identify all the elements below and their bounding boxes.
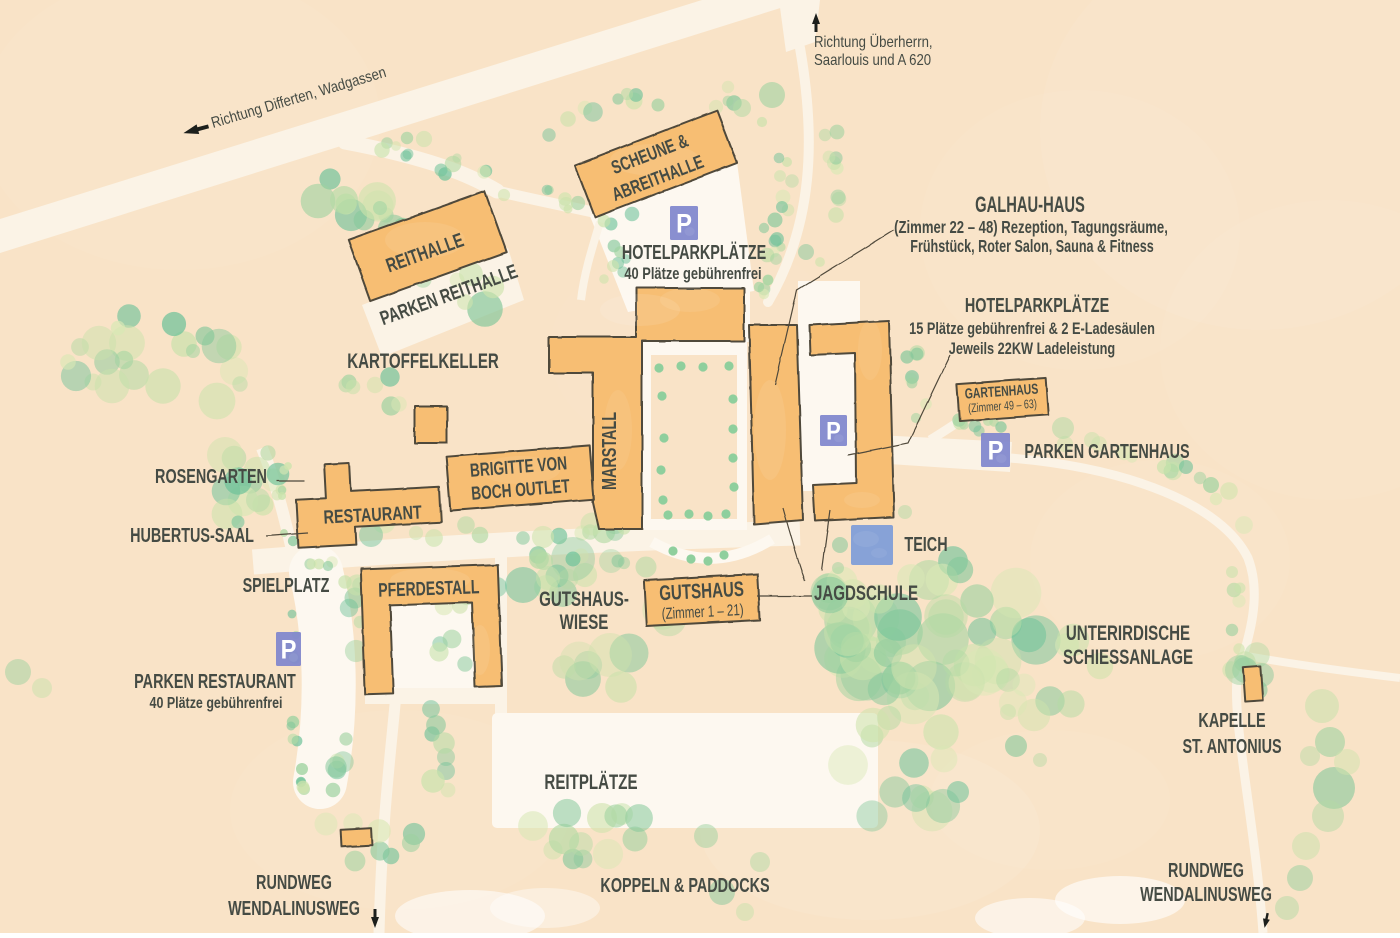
svg-text:SPIELPLATZ: SPIELPLATZ <box>243 574 330 597</box>
svg-text:GUTSHAUS-: GUTSHAUS- <box>539 586 629 610</box>
svg-text:ROSENGARTEN: ROSENGARTEN <box>155 465 267 488</box>
svg-text:SCHIESSANLAGE: SCHIESSANLAGE <box>1063 644 1193 668</box>
svg-text:PARKEN RESTAURANT: PARKEN RESTAURANT <box>134 670 296 693</box>
svg-text:ST. ANTONIUS: ST. ANTONIUS <box>1182 735 1281 758</box>
svg-text:UNTERIRDISCHE: UNTERIRDISCHE <box>1066 620 1190 644</box>
svg-text:HUBERTUS-SAAL: HUBERTUS-SAAL <box>130 524 254 547</box>
svg-text:JAGDSCHULE: JAGDSCHULE <box>814 580 918 604</box>
svg-text:40 Plätze gebührenfrei: 40 Plätze gebührenfrei <box>150 695 283 713</box>
svg-text:Saarlouis und A 620: Saarlouis und A 620 <box>814 52 931 69</box>
svg-text:WENDALINUSWEG: WENDALINUSWEG <box>1140 883 1272 906</box>
svg-text:Richtung Überherrn,: Richtung Überherrn, <box>814 32 933 51</box>
svg-text:KAPELLE: KAPELLE <box>1198 709 1265 732</box>
svg-text:PFERDESTALL: PFERDESTALL <box>378 576 480 601</box>
svg-text:RUNDWEG: RUNDWEG <box>256 871 332 894</box>
svg-text:P: P <box>826 417 841 445</box>
svg-text:PARKEN GARTENHAUS: PARKEN GARTENHAUS <box>1024 440 1189 463</box>
svg-text:40 Plätze gebührenfrei: 40 Plätze gebührenfrei <box>624 266 761 284</box>
svg-text:Frühstück, Roter Salon, Sauna: Frühstück, Roter Salon, Sauna & Fitness <box>910 237 1153 257</box>
svg-text:REITPLÄTZE: REITPLÄTZE <box>544 769 637 793</box>
svg-text:MARSTALL: MARSTALL <box>598 412 621 490</box>
svg-text:P: P <box>281 635 297 665</box>
svg-text:WIESE: WIESE <box>560 609 609 633</box>
svg-text:Jeweils 22KW Ladeleistung: Jeweils 22KW Ladeleistung <box>949 339 1115 358</box>
svg-text:WENDALINUSWEG: WENDALINUSWEG <box>228 897 360 920</box>
svg-text:HOTELPARKPLÄTZE: HOTELPARKPLÄTZE <box>622 241 766 264</box>
svg-text:KARTOFFELKELLER: KARTOFFELKELLER <box>347 348 499 372</box>
svg-text:KOPPELN & PADDOCKS: KOPPELN & PADDOCKS <box>600 874 769 897</box>
svg-text:GALHAU-HAUS: GALHAU-HAUS <box>975 192 1085 217</box>
svg-text:15 Plätze gebührenfrei & 2 E-L: 15 Plätze gebührenfrei & 2 E-Ladesäulen <box>909 319 1155 338</box>
svg-text:HOTELPARKPLÄTZE: HOTELPARKPLÄTZE <box>965 294 1109 317</box>
svg-text:P: P <box>676 209 692 239</box>
svg-text:TEICH: TEICH <box>904 533 947 556</box>
svg-text:P: P <box>988 436 1004 466</box>
svg-text:(Zimmer 22 – 48) Rezeption, Ta: (Zimmer 22 – 48) Rezeption, Tagungsräume… <box>894 218 1168 237</box>
svg-text:RUNDWEG: RUNDWEG <box>1168 859 1244 882</box>
